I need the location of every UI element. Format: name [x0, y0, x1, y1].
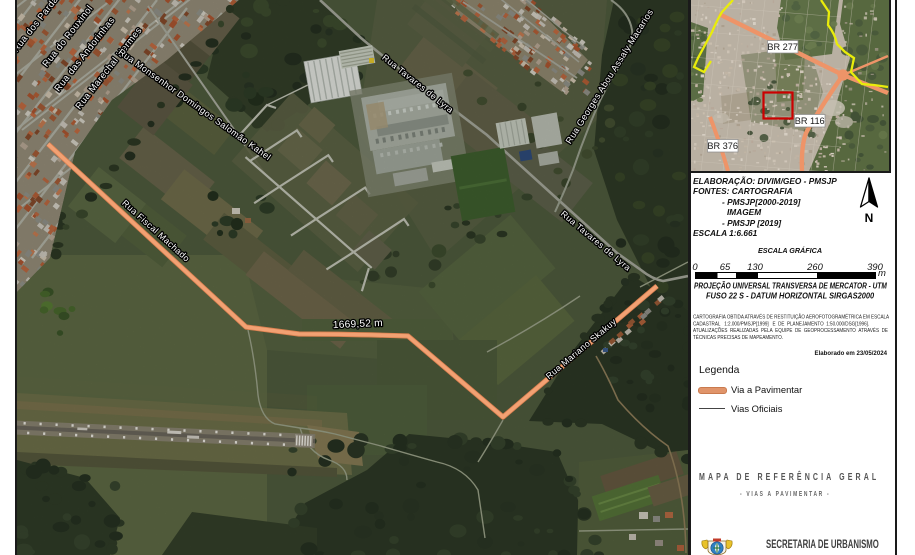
svg-text:BR 277: BR 277: [767, 42, 798, 52]
svg-text:BR 376: BR 376: [707, 141, 738, 151]
svg-text:1669,52 m: 1669,52 m: [333, 318, 383, 331]
svg-text:BR 116: BR 116: [795, 116, 825, 126]
